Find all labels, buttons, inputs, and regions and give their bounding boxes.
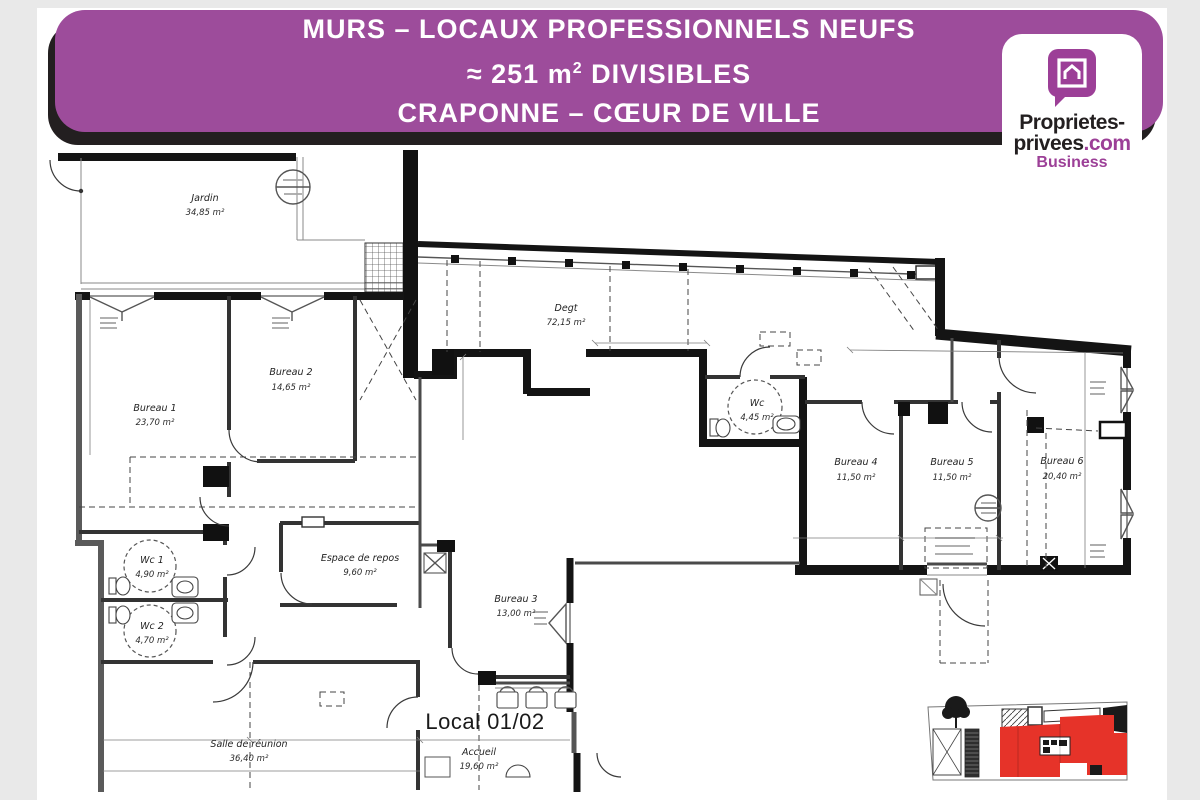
svg-text:Bureau 2: Bureau 2 bbox=[269, 367, 312, 378]
dimension-lines bbox=[90, 300, 1123, 771]
svg-text:36,40 m²: 36,40 m² bbox=[230, 754, 269, 764]
svg-text:4,90 m²: 4,90 m² bbox=[135, 570, 169, 580]
svg-text:Wc 2: Wc 2 bbox=[140, 621, 164, 632]
svg-text:Wc 1: Wc 1 bbox=[140, 555, 164, 566]
brand-name: Proprietes- privees.com bbox=[1013, 112, 1130, 154]
svg-text:Jardin: Jardin bbox=[189, 193, 218, 204]
local-label: Local 01/02 bbox=[425, 709, 544, 734]
svg-text:Bureau 3: Bureau 3 bbox=[494, 594, 537, 605]
svg-text:4,45 m²: 4,45 m² bbox=[740, 413, 774, 423]
room-label-degt: Degt 72,15 m² bbox=[547, 303, 586, 328]
tree-icon bbox=[942, 696, 970, 728]
banner-line-1: MURS – LOCAUX PROFESSIONNELS NEUFS bbox=[55, 10, 1163, 49]
svg-text:Salle de réunion: Salle de réunion bbox=[210, 739, 287, 750]
header-banner: MURS – LOCAUX PROFESSIONNELS NEUFS ≈ 251… bbox=[55, 10, 1163, 132]
svg-text:Bureau 6: Bureau 6 bbox=[1040, 456, 1083, 467]
svg-text:Accueil: Accueil bbox=[461, 747, 496, 758]
svg-text:11,50 m²: 11,50 m² bbox=[933, 473, 972, 483]
room-label-bureau-5: Bureau 5 11,50 m² bbox=[930, 457, 973, 483]
svg-text:13,00 m²: 13,00 m² bbox=[497, 609, 536, 619]
svg-text:Wc: Wc bbox=[750, 398, 765, 409]
svg-text:Degt: Degt bbox=[555, 303, 579, 314]
room-label-bureau-6: Bureau 6 20,40 m² bbox=[1040, 456, 1083, 482]
room-label-bureau-3: Bureau 3 13,00 m² bbox=[494, 594, 537, 619]
room-label-jardin: Jardin 34,85 m² bbox=[186, 193, 225, 218]
room-label-bureau-1: Bureau 1 23,70 m² bbox=[133, 403, 176, 428]
room-label-wc-1: Wc 1 4,90 m² bbox=[135, 555, 169, 580]
room-label-espace-de-repos: Espace de repos 9,60 m² bbox=[321, 553, 399, 578]
svg-text:Espace de repos: Espace de repos bbox=[321, 553, 399, 564]
svg-text:23,70 m²: 23,70 m² bbox=[136, 418, 175, 428]
brand-subtitle: Business bbox=[1036, 154, 1107, 172]
banner-line-2: ≈ 251 m2 DIVISIBLES bbox=[55, 49, 1163, 94]
room-label-wc-2: Wc 2 4,70 m² bbox=[135, 621, 169, 646]
garden-stamp bbox=[276, 170, 310, 204]
svg-text:4,70 m²: 4,70 m² bbox=[135, 636, 169, 646]
garden-area bbox=[50, 157, 405, 292]
svg-text:72,15 m²: 72,15 m² bbox=[547, 318, 586, 328]
svg-text:Bureau 5: Bureau 5 bbox=[930, 457, 973, 468]
svg-text:9,60 m²: 9,60 m² bbox=[343, 568, 377, 578]
svg-text:Bureau 4: Bureau 4 bbox=[834, 457, 877, 468]
windows bbox=[90, 255, 1133, 643]
site-minimap bbox=[928, 696, 1127, 780]
fixtures bbox=[109, 380, 1001, 777]
svg-text:34,85 m²: 34,85 m² bbox=[186, 208, 225, 218]
room-label-bureau-2: Bureau 2 14,65 m² bbox=[269, 367, 312, 393]
banner-line-3: CRAPONNE – CŒUR DE VILLE bbox=[55, 94, 1163, 133]
svg-text:11,50 m²: 11,50 m² bbox=[837, 473, 876, 483]
exterior-walls bbox=[75, 150, 1131, 792]
room-label-salle-de-reunion: Salle de réunion 36,40 m² bbox=[210, 739, 287, 764]
interior-walls bbox=[79, 296, 1058, 790]
agency-logo-card: Proprietes- privees.com Business bbox=[1002, 34, 1142, 176]
svg-text:14,65 m²: 14,65 m² bbox=[272, 383, 311, 393]
svg-text:20,40 m²: 20,40 m² bbox=[1043, 472, 1082, 482]
svg-text:19,60 m²: 19,60 m² bbox=[460, 762, 499, 772]
house-in-speech-bubble-icon bbox=[1045, 48, 1099, 108]
room-label-bureau-4: Bureau 4 11,50 m² bbox=[834, 457, 877, 483]
svg-text:Bureau 1: Bureau 1 bbox=[133, 403, 176, 414]
room-label-wc: Wc 4,45 m² bbox=[740, 398, 774, 423]
